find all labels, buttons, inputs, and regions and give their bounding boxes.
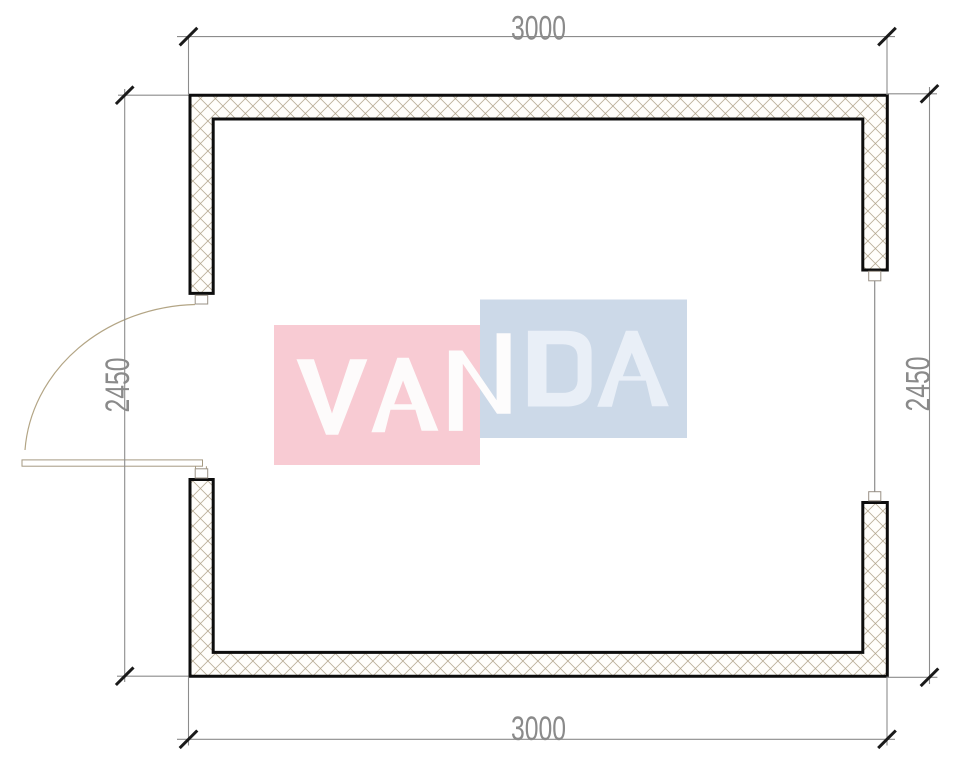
- svg-text:2450: 2450: [99, 358, 137, 413]
- svg-text:3000: 3000: [511, 10, 566, 48]
- svg-text:3000: 3000: [511, 710, 566, 748]
- svg-text:2450: 2450: [899, 357, 937, 412]
